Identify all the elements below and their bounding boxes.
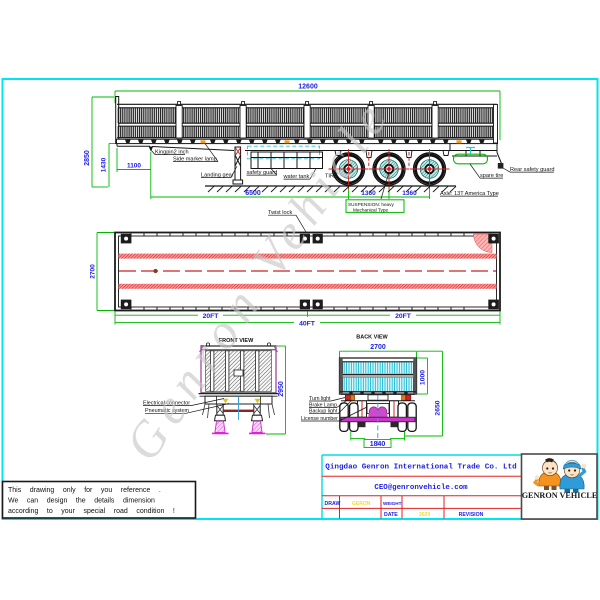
svg-text:1430: 1430 [101,157,108,172]
svg-text:1840: 1840 [370,441,386,448]
svg-text:1360: 1360 [402,190,417,197]
svg-text:2020: 2020 [419,512,430,518]
svg-text:BACK VIEW: BACK VIEW [356,335,388,341]
svg-text:6500: 6500 [245,190,261,197]
svg-text:2700: 2700 [370,344,386,351]
svg-text:20FT: 20FT [395,313,412,320]
svg-text:2650: 2650 [435,400,442,415]
svg-text:Mechanical Type: Mechanical Type [353,207,388,212]
svg-text:2850: 2850 [84,150,91,166]
svg-text:according to your special road: according to your special road condition… [8,508,175,515]
svg-text:WEIGHT: WEIGHT [383,501,402,506]
svg-text:1360: 1360 [361,190,376,197]
svg-text:REVISION: REVISION [459,512,484,518]
svg-text:CEO@genronvehicle.com: CEO@genronvehicle.com [374,484,468,492]
svg-text:We can design the details dime: We can design the details dimension [8,498,155,505]
svg-text:Qingdao Genron International T: Qingdao Genron International Trade Co. L… [325,464,517,472]
svg-text:GENRON VEHICLE: GENRON VEHICLE [522,491,598,500]
svg-text:40FT: 40FT [299,320,316,327]
svg-text:1100: 1100 [127,163,141,170]
svg-text:2950: 2950 [278,381,285,397]
svg-text:1000: 1000 [420,370,427,385]
svg-text:DATE: DATE [384,512,398,518]
svg-text:DRAW: DRAW [325,501,341,507]
svg-text:This drawing only for you refe: This drawing only for you reference . [8,487,161,494]
svg-text:SUSPENSION: heavy: SUSPENSION: heavy [348,202,395,207]
svg-text:GERON: GERON [352,501,371,507]
svg-text:2700: 2700 [90,264,97,279]
svg-text:12600: 12600 [298,84,318,91]
